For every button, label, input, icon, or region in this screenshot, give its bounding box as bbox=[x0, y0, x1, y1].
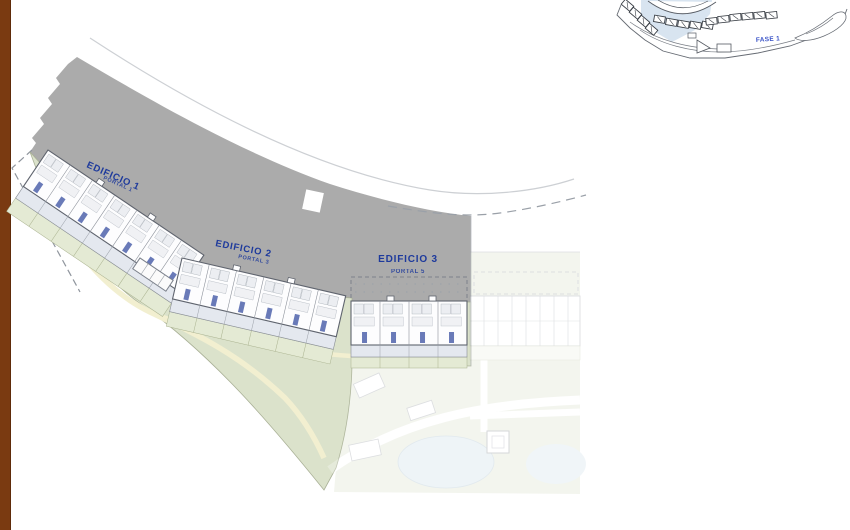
edificio-3-label[interactable]: EDIFICIO 3 bbox=[378, 254, 438, 265]
inset-amenity-rect bbox=[717, 44, 731, 52]
overview-inset: FASE 1 bbox=[617, 0, 847, 58]
site-plan-drawing: EDIFICIO 1 PORTAL 1 EDIFICIO 2 PORTAL 3 … bbox=[0, 0, 850, 530]
site-plan-page: EDIFICIO 1 PORTAL 1 EDIFICIO 2 PORTAL 3 … bbox=[0, 0, 850, 530]
inset-amenity-rect-small bbox=[688, 33, 696, 38]
pool-secondary bbox=[526, 444, 586, 484]
plaza-square bbox=[487, 431, 509, 453]
context-house-row bbox=[470, 296, 580, 360]
context-path-lower bbox=[470, 412, 580, 416]
portal-5-label[interactable]: PORTAL 5 bbox=[391, 269, 425, 275]
pool bbox=[398, 436, 494, 488]
fase-1-label: FASE 1 bbox=[756, 35, 781, 44]
inset-lagoon bbox=[795, 12, 846, 41]
